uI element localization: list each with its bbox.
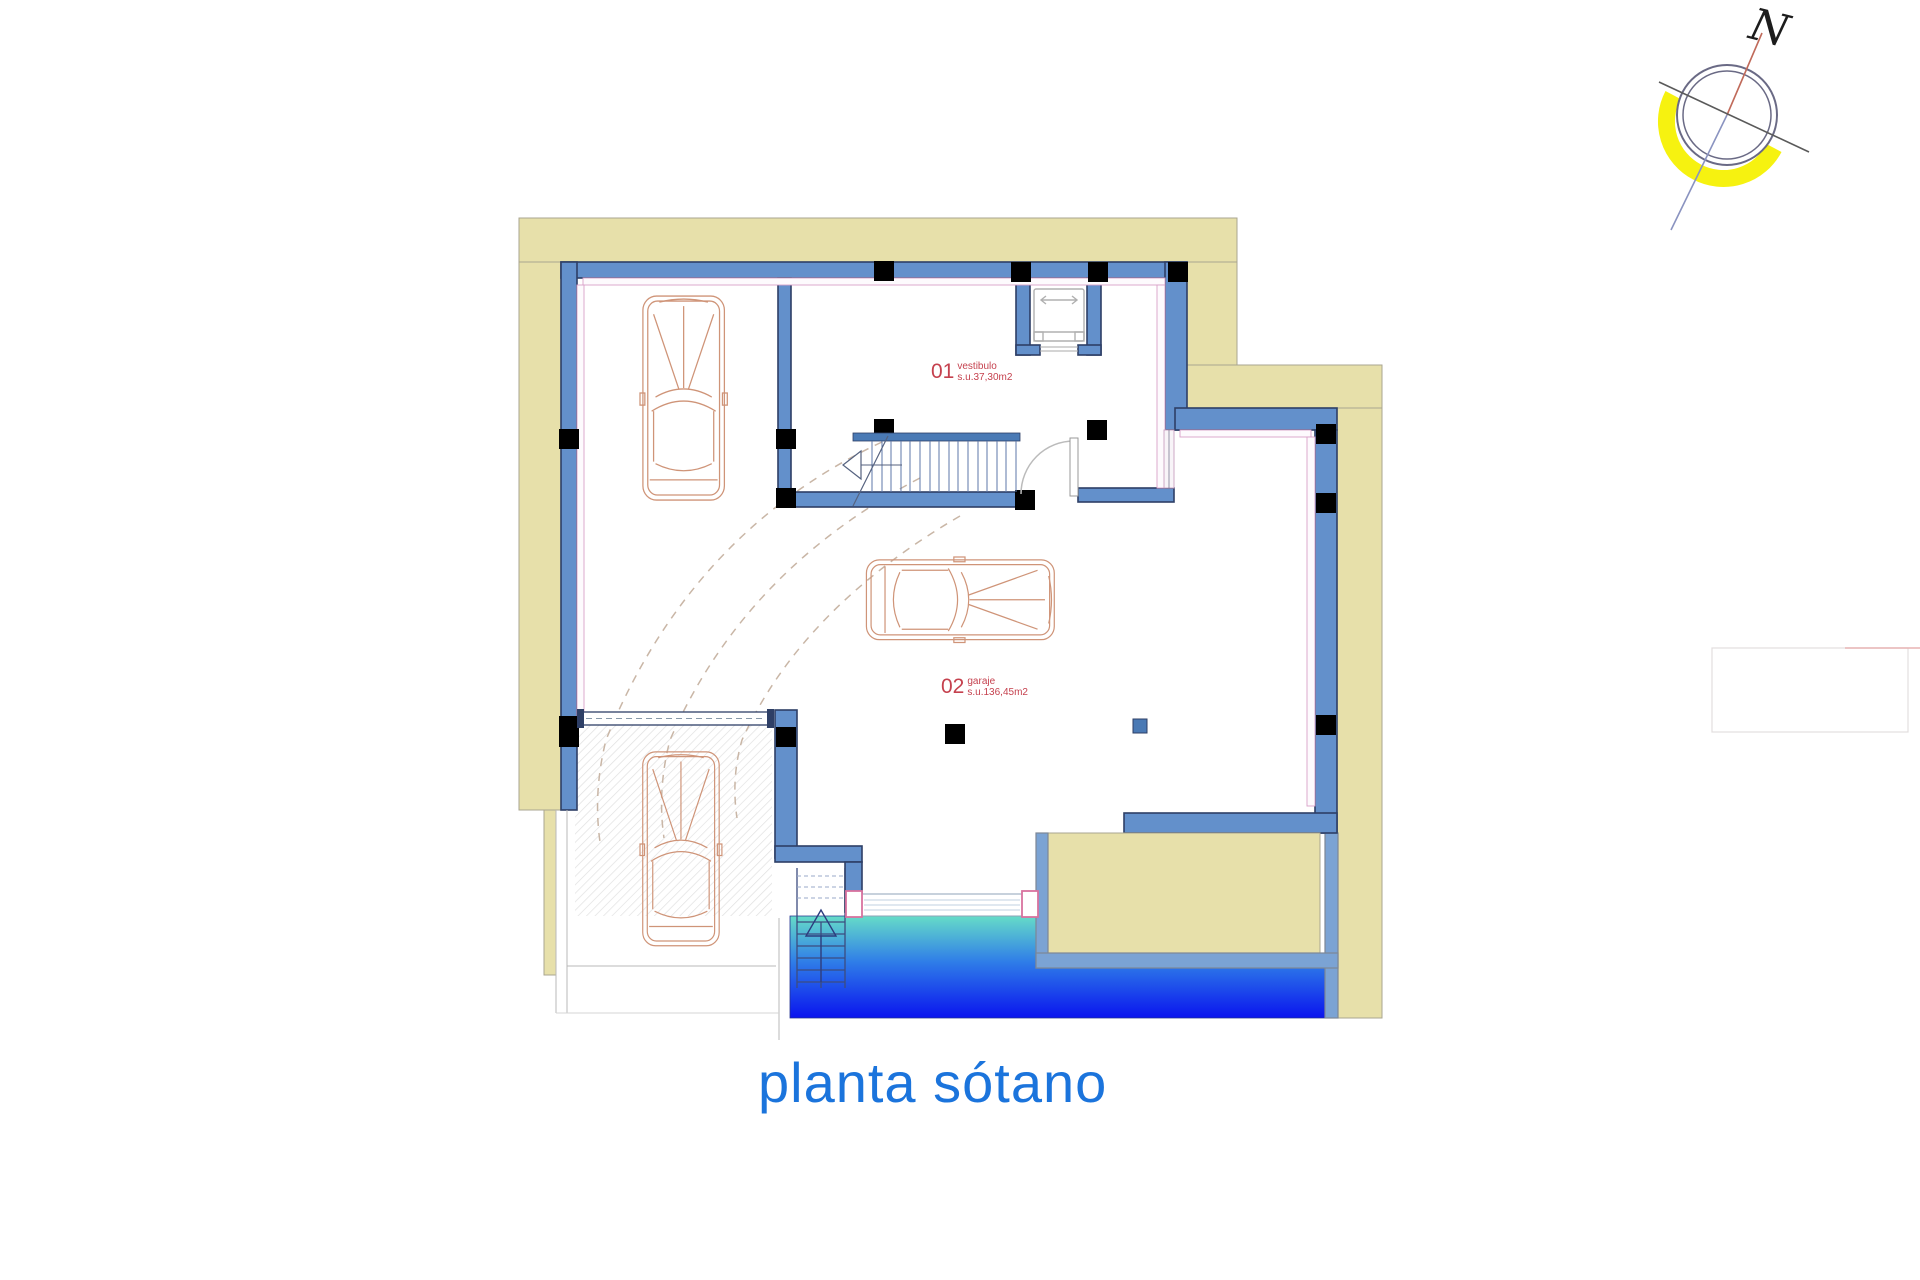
door-jamb [1022,891,1038,917]
north-label: N [1743,0,1795,58]
car-garage-center [866,557,1054,643]
plan-title: planta sótano [758,1050,1107,1115]
terrace [1036,833,1338,968]
interior-door [1021,438,1078,496]
room-area: s.u.136,45m2 [967,688,1028,699]
elevator-car-symbol [1034,289,1084,341]
floor-plan-sheet: N 01 vestibulo s.u.37,30m2 02 garaje s.u… [0,0,1920,1280]
garage-sectional-door [577,709,774,728]
room-area: s.u.37,30m2 [957,373,1012,384]
car-parking-top-left [640,296,727,500]
floor-drain [1133,719,1147,733]
room-name: vestibulo [957,362,1012,373]
room-label-vestibulo: 01 vestibulo s.u.37,30m2 [931,361,1012,383]
elevator [1034,289,1084,351]
room-label-garaje: 02 garaje s.u.136,45m2 [941,676,1028,698]
stair-direction-arrow [843,451,861,479]
room-number: 02 [941,676,964,697]
compass-rose: N [1659,0,1809,230]
door-jamb [846,891,862,917]
room-name: garaje [967,677,1028,688]
reference-outline [1712,648,1920,732]
room-number: 01 [931,361,954,382]
pool-glass-door [846,891,1038,917]
